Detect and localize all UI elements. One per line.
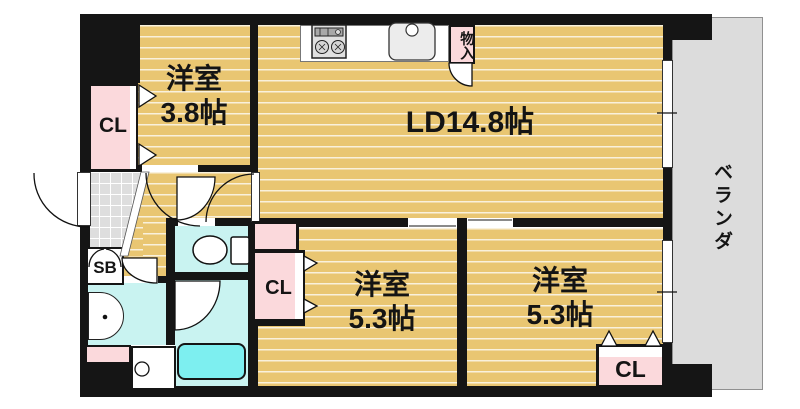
room-name: 洋室 — [480, 264, 640, 298]
toilet-door-opening — [178, 218, 215, 226]
closet-label: CL — [596, 356, 665, 382]
washing-machine-space — [131, 346, 176, 390]
room-size: 5.3帖 — [302, 302, 462, 336]
bathtub-icon — [177, 343, 246, 380]
sliding-door — [467, 218, 513, 227]
wall-segment — [250, 14, 258, 172]
room-name: 洋室 — [302, 268, 462, 302]
room-label-bedroom-right: 洋室 5.3帖 — [480, 264, 640, 332]
balcony-label: ベランダ — [702, 148, 732, 268]
closet-upper-box — [252, 221, 299, 252]
wall-segment — [86, 14, 712, 25]
room-label-living: LD14.8帖 — [340, 106, 600, 141]
wall-segment — [663, 166, 672, 240]
washroom-door-opening — [122, 276, 158, 283]
wall-segment — [166, 272, 258, 280]
sliding-door — [408, 218, 457, 227]
hall-floor — [125, 172, 258, 222]
hall-storage-label: 物入 — [450, 27, 474, 63]
room-label-bedroom-left: 洋室 5.3帖 — [302, 268, 462, 336]
kitchen-counter — [300, 25, 449, 62]
sliding-window-icon — [662, 60, 673, 168]
bedroom-top-door-opening — [142, 165, 198, 172]
room-name: 洋室 — [138, 62, 250, 96]
wall-segment — [511, 218, 672, 227]
entrance-door — [77, 172, 91, 226]
sliding-window-icon — [662, 240, 673, 343]
wall-segment — [80, 14, 140, 83]
shoe-box-label: SB — [86, 258, 124, 278]
wall-segment — [198, 165, 258, 172]
room-label-bedroom-top: 洋室 3.8帖 — [138, 62, 250, 130]
washroom-cabinet — [85, 345, 131, 364]
floor-plan: LD14.8帖 洋室 3.8帖 洋室 5.3帖 洋室 5.3帖 CL CL CL… — [0, 0, 800, 409]
toilet-room-floor — [175, 226, 248, 272]
room-size: 3.8帖 — [138, 96, 250, 130]
hall-ld-door — [251, 172, 260, 222]
wall-segment — [80, 362, 135, 397]
wall-segment — [663, 25, 672, 62]
closet-label: CL — [252, 277, 305, 300]
closet-label: CL — [88, 114, 138, 138]
room-size: 5.3帖 — [480, 298, 640, 332]
